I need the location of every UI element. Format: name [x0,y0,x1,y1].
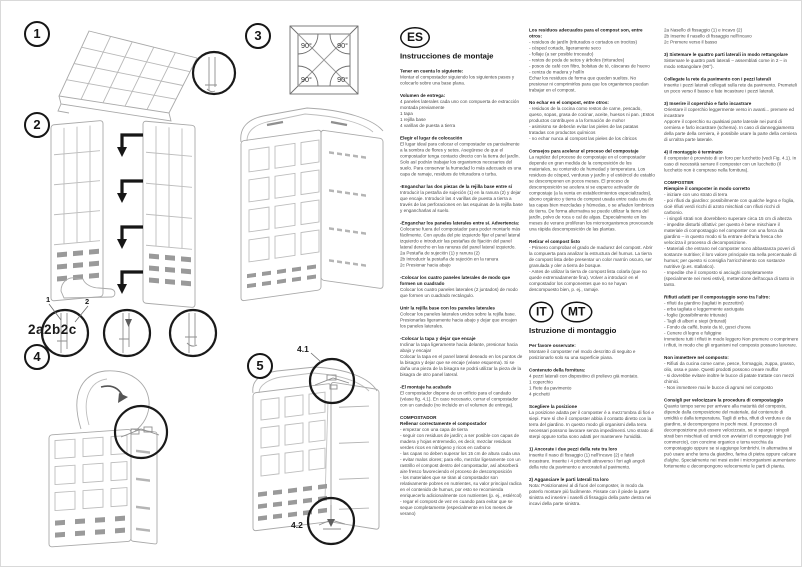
section-body: - empezar con una capa de tierra - segui… [400,427,523,517]
section-title: Los residuos adecuados para el compost s… [529,27,655,39]
fig-4-1-label: 4.1 [297,344,309,354]
text-block: COMPOSTADOR Rellenar correctamente el co… [400,415,523,517]
step-badge-2: 2 [24,112,50,138]
step-badge-4: 4 [24,344,50,370]
text-block: 3) Sistemare le quattro parti laterali i… [664,52,799,70]
column-es: ES Instrucciones de montaje Tener en cue… [400,27,523,562]
step-badge-5: 5 [247,353,273,379]
hinge-detail-circle [115,406,167,458]
manual-page: 90° 90° 90° 90° [0,0,802,567]
step-badge-3: 3 [245,23,271,49]
callout-1-label: 1 [46,295,50,304]
es-title: Instrucciones de montaje [400,52,523,61]
section-body: El lugar ideal para colocar el compostad… [400,141,523,177]
it-title: Istruzione di montaggio [529,327,655,336]
diagram-1-base-grid [58,31,197,121]
text-block: 4) Il montaggio è terminatoIl composter … [664,149,799,173]
angle-label: 90° [301,41,312,50]
column-middle: Los residuos adecuados para el compost s… [529,27,655,562]
section-body: Colocar los cuatro paneles laterales (2 … [400,287,523,299]
text-block: 1) Ancorate i due pezzi della rete tra l… [529,446,655,470]
diagram-5-composter [253,367,379,531]
text-block: Volumen de entrega:4 paneles laterales c… [400,93,523,129]
section-body: Sistemare le quattro parti laterali – as… [664,58,799,70]
lock-detail-circle [310,353,354,403]
text-block: Scegliere la posizioneLa posizione adatt… [529,404,655,440]
text-block: Consigli per velocizzare la procedura di… [664,397,799,469]
text-block: Collegate la rete da pavimento con i pez… [664,76,799,94]
section-body: Colocarse fuera del compostador para pod… [400,226,523,268]
language-badge-it: IT [529,302,554,323]
section-body: - residuos de la cocina como restos de c… [529,106,655,142]
language-badge-es: ES [400,27,430,48]
language-badge-mt: MT [561,302,592,323]
section-title: COMPOSTADOR Rellenar correctamente el co… [400,415,523,427]
detail-circle-2b [104,310,150,356]
text-block: -Colocar la tapa y dejar que encajeIncli… [400,336,523,378]
section-body: Nota: Posizionatevi al di fuori del comp… [529,483,655,507]
section-body: 4 paneles laterales cada uno con compuer… [400,99,523,129]
angle-label: 90° [301,75,312,84]
section-body: - residuos de jardín (triturados o corta… [529,39,655,93]
boot-icon [61,278,115,298]
section-body: Inserite il naso di fissaggio (1) nell'i… [529,452,655,470]
assembly-diagrams-artwork: 90° 90° 90° 90° [1,1,401,566]
text-block: Contenuto della fornitura:4 pezzi latera… [529,367,655,397]
section-body: - Primero comprobar el grado de madurez … [529,245,655,293]
section-title: COMPOSTER Riempire il composter in modo … [664,180,799,192]
text-block: Per favore osservate:Montare il composte… [529,343,655,361]
step-badge-1: 1 [24,21,50,47]
section-body: La posizione adatta per il composter è a… [529,410,655,440]
text-block: Elegir el lugar de colocaciónEl lugar id… [400,135,523,177]
text-block: Tener en cuenta lo siguiente:Montar el c… [400,68,523,86]
join-arrows-icon [117,135,143,294]
section-body: - rifiuti da giardino (tagliati in pezze… [664,300,799,348]
text-block: Los residuos adecuados para el compost s… [529,27,655,93]
text-block: Retirar el compost listo- Primero compro… [529,239,655,293]
section-body: Il composter è provvisto di un foro per … [664,155,799,173]
text-block: -El montaje ha acabadoEl compostador dis… [400,384,523,408]
section-body: Montare il composter nel modo descritto … [529,349,655,361]
section-body: Montar el compostador siguiendo los sigu… [400,74,523,86]
text-block: COMPOSTER Riempire il composter in modo … [664,180,799,288]
callout-2-label: 2 [85,297,89,306]
section-body: - iniziare con uno strato di terra - poi… [664,192,799,288]
fig-4-2-label: 4.2 [291,520,303,530]
text-block: Rifiuti adatti per il compostaggio sono … [664,294,799,348]
section-body: Quanto tempo serve per arrivare alla mat… [664,403,799,469]
section-body: Introducir la pestaña de sujeción (1) en… [400,190,523,214]
section-body: Inserite i pezzi laterali collegati sull… [664,82,799,94]
angle-label: 90° [337,75,348,84]
angle-label: 90° [337,41,348,50]
text-block: Unir la rejilla base con los paneles lat… [400,305,523,329]
text-block: -Enganchar las dos piezas de la rejilla … [400,184,523,214]
section-body: 4 pezzi laterali con dispositivo di prel… [529,373,655,397]
section-body: La rapidez del proceso de compostaje en … [529,154,655,232]
text-block: -Colocar los cuatro paneles laterales de… [400,275,523,299]
text-block: 3) Inserire il coperchio e farlo incastr… [664,101,799,143]
section-title: -Colocar los cuatro paneles laterales de… [400,275,523,287]
column-it: 2a Nasello di fissaggio (1) e incavo (2)… [664,27,799,562]
section-body: Orientare il coperchio leggermente verso… [664,107,799,143]
text-block: 2) Agganciare le parti laterali tra loro… [529,477,655,507]
joint-detail-label: 2a2b2c [28,322,77,337]
detail-circle-2c [170,310,216,356]
diagram-3-composter [241,108,383,301]
section-body: Colocar los paneles laterales unidos sob… [400,311,523,329]
stake-detail-circle [193,52,235,94]
section-body: - Rifiuti da cucina come carne, pesce, f… [664,361,799,391]
text-block: Non immettere nel composto:- Rifiuti da … [664,355,799,391]
text-block: -Enganchar los paneles laterales entre s… [400,220,523,268]
text-block: Consejos para acelerar el proceso del co… [529,148,655,232]
section-body: 2a Nasello di fissaggio (1) e incavo (2)… [664,27,799,45]
section-body: Inclinar la tapa ligeramente hacia delan… [400,342,523,378]
section-body: El compostador dispone de un orificio pa… [400,390,523,408]
text-block: 2a Nasello di fissaggio (1) e incavo (2)… [664,27,799,45]
text-block: No echar en el compost, entre otros:- re… [529,100,655,142]
